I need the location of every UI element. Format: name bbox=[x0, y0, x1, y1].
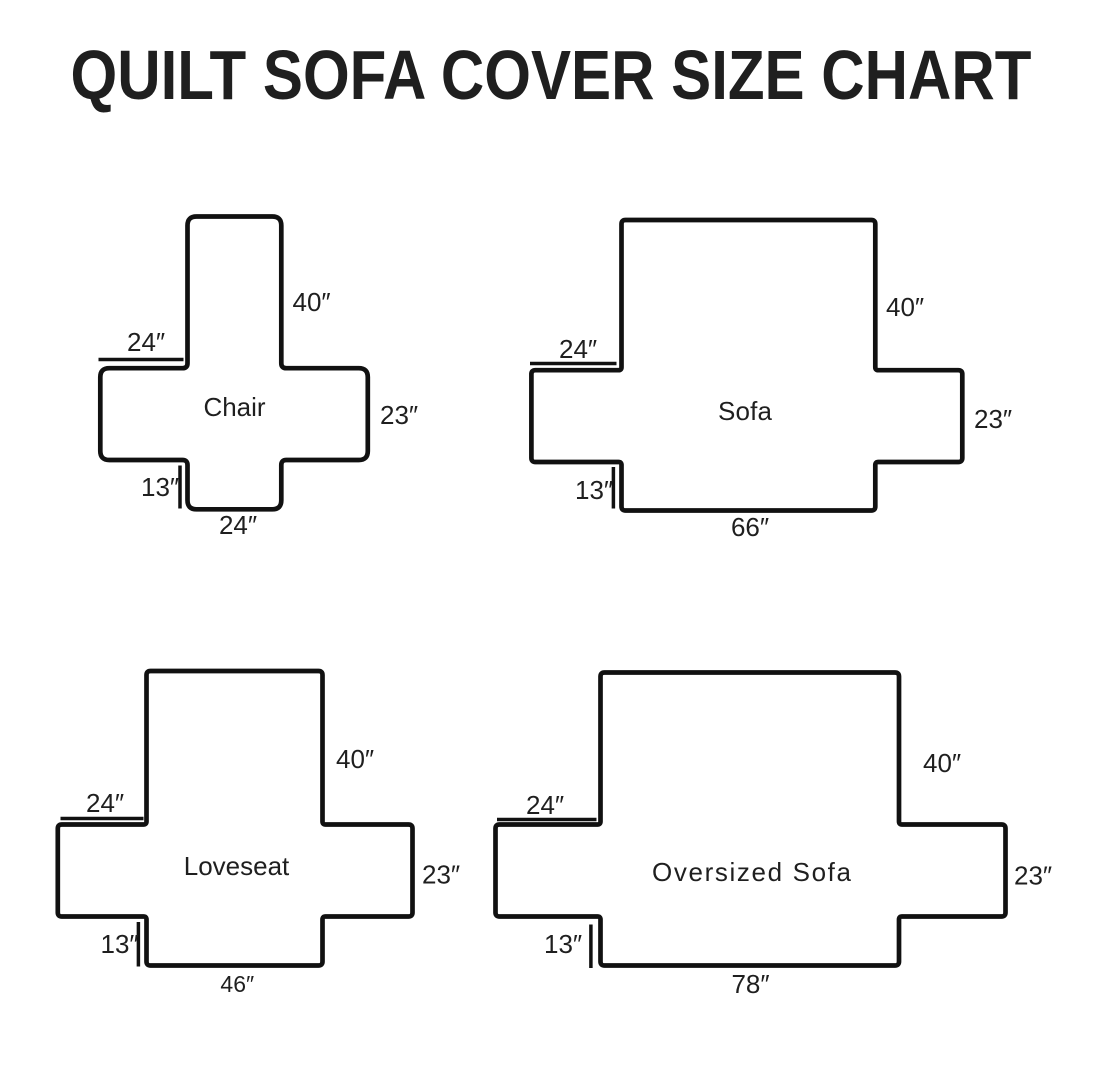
svg-text:23″: 23″ bbox=[974, 404, 1012, 434]
svg-text:Sofa: Sofa bbox=[718, 396, 773, 426]
svg-text:40″: 40″ bbox=[923, 748, 961, 778]
svg-text:23″: 23″ bbox=[380, 400, 418, 430]
svg-text:24″: 24″ bbox=[86, 788, 124, 818]
svg-text:46″: 46″ bbox=[220, 971, 254, 997]
svg-text:13″: 13″ bbox=[101, 929, 139, 959]
svg-text:23″: 23″ bbox=[422, 860, 460, 890]
svg-text:23″: 23″ bbox=[1014, 861, 1052, 891]
svg-text:13″: 13″ bbox=[575, 475, 613, 505]
svg-text:78″: 78″ bbox=[731, 969, 769, 999]
svg-text:Oversized Sofa: Oversized Sofa bbox=[652, 857, 852, 887]
svg-text:40″: 40″ bbox=[886, 292, 924, 322]
svg-text:40″: 40″ bbox=[336, 744, 374, 774]
svg-text:24″: 24″ bbox=[559, 334, 597, 364]
svg-text:40″: 40″ bbox=[293, 287, 331, 317]
svg-text:QUILT SOFA COVER SIZE CHART: QUILT SOFA COVER SIZE CHART bbox=[71, 36, 1032, 114]
svg-text:24″: 24″ bbox=[127, 327, 165, 357]
svg-text:Chair: Chair bbox=[204, 392, 266, 422]
svg-text:24″: 24″ bbox=[219, 510, 257, 540]
svg-text:13″: 13″ bbox=[141, 472, 179, 502]
svg-text:Loveseat: Loveseat bbox=[184, 851, 290, 881]
svg-text:24″: 24″ bbox=[526, 790, 564, 820]
svg-text:13″: 13″ bbox=[544, 929, 582, 959]
svg-text:66″: 66″ bbox=[731, 512, 769, 542]
